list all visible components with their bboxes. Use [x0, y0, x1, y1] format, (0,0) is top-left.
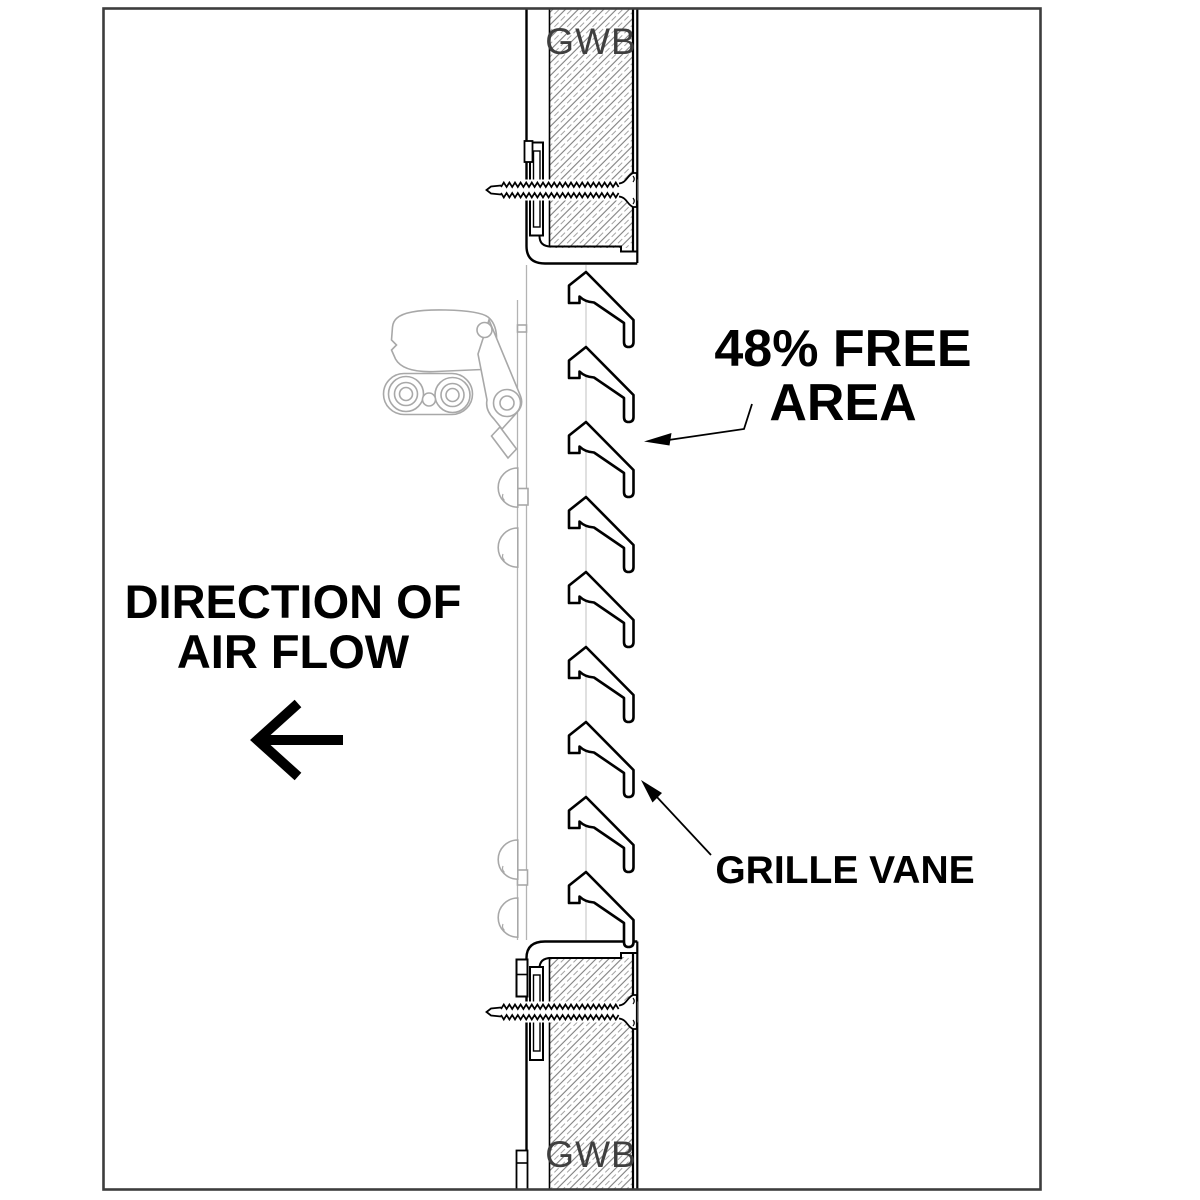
- latch-roller-center: [423, 393, 436, 406]
- mounting-bracket-top-tab: [525, 141, 533, 162]
- grille-vane: [569, 647, 634, 722]
- grille-vane: [569, 572, 634, 647]
- gwb-label-top: GWB: [545, 21, 636, 62]
- free-area-leader-line: [665, 404, 752, 441]
- free-area-label-line1: 48% FREE: [714, 320, 971, 378]
- grille-vane: [569, 347, 634, 422]
- latch-pin-top: [477, 323, 492, 338]
- grille-vanes: [569, 272, 634, 947]
- direction-of-air-flow-label-line1: DIRECTION OF: [125, 575, 462, 628]
- top-wall-section: GWB: [486, 8, 638, 264]
- mounting-bracket-bottom-clip: [517, 960, 528, 997]
- grille-vane: [569, 497, 634, 572]
- fastener-knob: [498, 840, 518, 879]
- latch-arm-lower: [492, 427, 517, 458]
- fastener-knob: [498, 898, 518, 937]
- leaf-keeper-tick-1: [518, 325, 527, 332]
- direction-of-air-flow-label-line2: AIR FLOW: [177, 625, 410, 678]
- grille-vane: [569, 797, 634, 872]
- grille-vane-label: GRILLE VANE: [715, 849, 974, 892]
- annotations: 48% FREE AREA GRILLE VANE DIRECTION OF A…: [125, 320, 975, 892]
- gwb-label-bottom: GWB: [545, 1134, 636, 1175]
- bottom-wall-section: GWB: [486, 942, 638, 1190]
- air-flow-arrow: [258, 704, 344, 777]
- mounting-bracket-bottom-tab: [517, 1151, 528, 1190]
- free-area-arrowhead: [644, 433, 672, 446]
- latch-pivot: [494, 390, 521, 417]
- grille-vane: [569, 272, 634, 347]
- fastener-knob: [498, 468, 518, 507]
- grille-vane-leader-line: [656, 796, 711, 855]
- grille-vane: [569, 722, 634, 797]
- fastener-knob: [498, 528, 518, 567]
- grille-vane: [569, 422, 634, 497]
- grille-vane: [569, 872, 634, 947]
- free-area-label-line2: AREA: [769, 374, 916, 432]
- leaf-keeper-tick-3: [518, 870, 528, 885]
- grille-section-drawing: GWB GWB 48% FREE AREA GRILLE VANE: [0, 0, 1200, 1200]
- drawing-canvas: GWB GWB 48% FREE AREA GRILLE VANE: [0, 0, 1200, 1200]
